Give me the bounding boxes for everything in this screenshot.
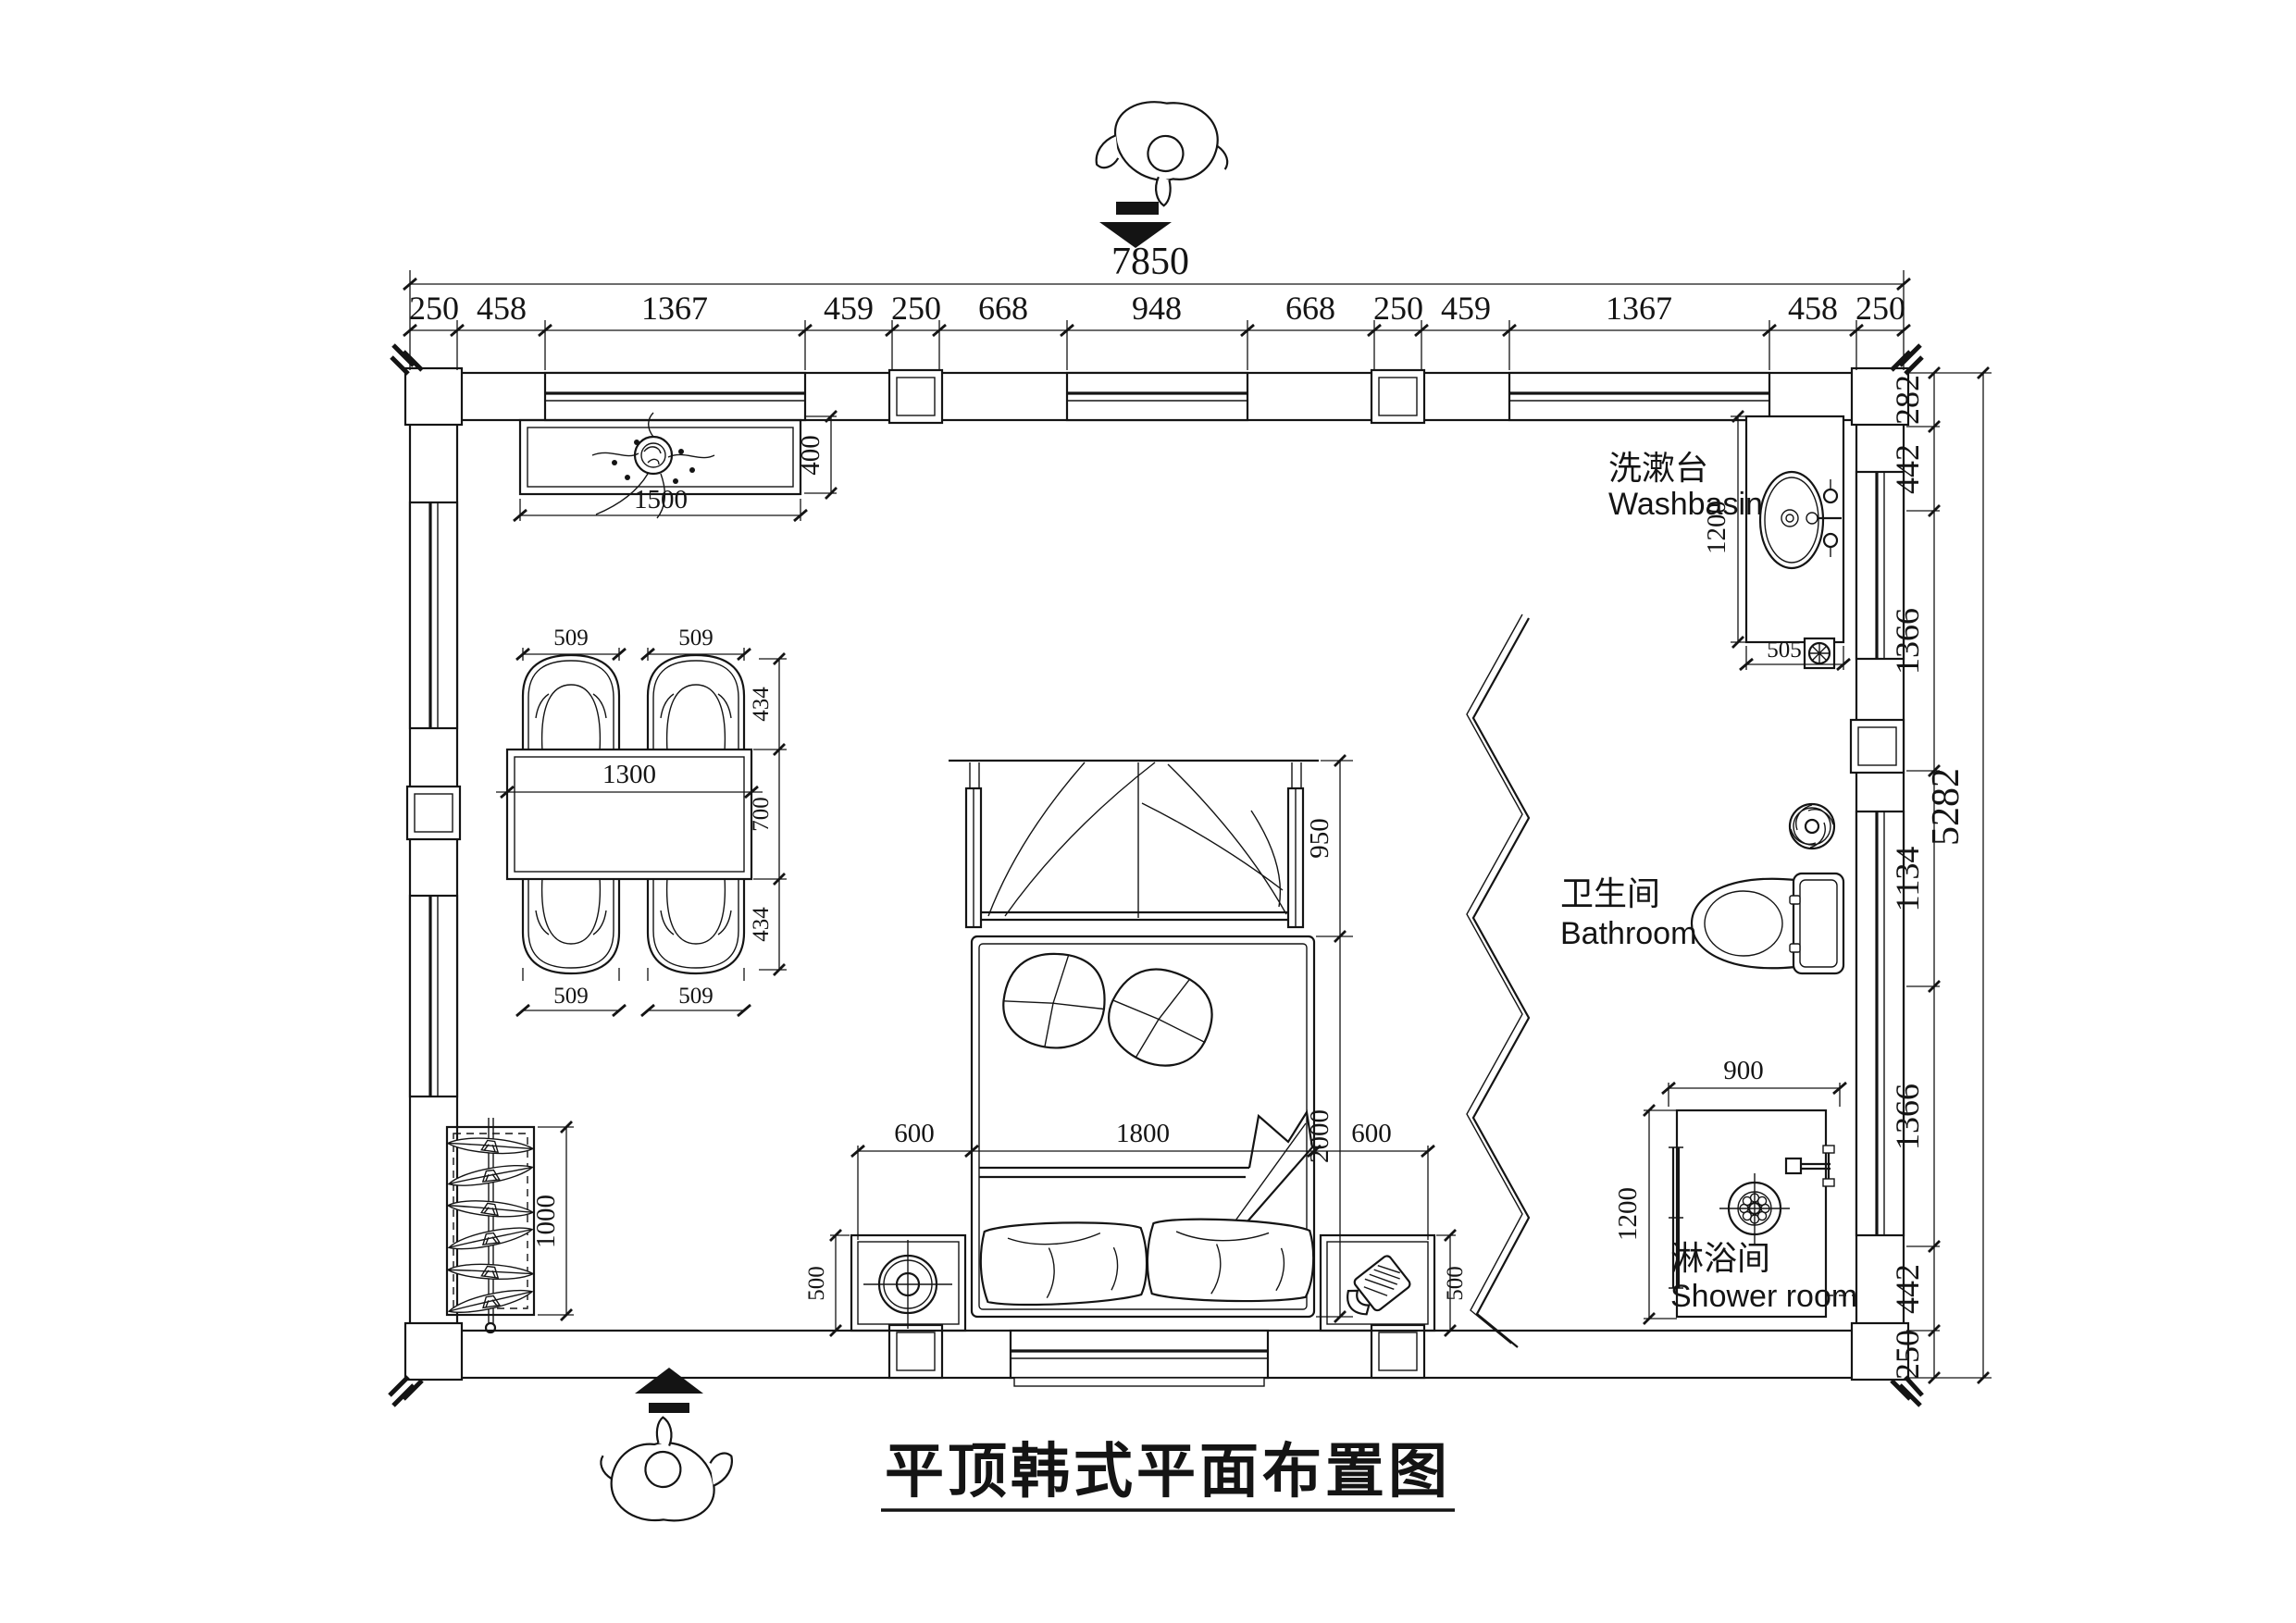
bed-gap-dim: 600 xyxy=(894,1119,935,1148)
bathroom-area: 卫生间 Bathroom xyxy=(1560,804,1843,973)
window-left-lower xyxy=(410,896,457,1096)
toilet-icon xyxy=(1692,873,1843,973)
column-right xyxy=(1851,720,1904,773)
entry-arrow-up-icon xyxy=(635,1368,703,1413)
dim-chain-top: 250 458 1367 459 250 668 948 668 250 459… xyxy=(403,241,1910,370)
dim-label: 250 xyxy=(1373,290,1423,327)
canopy-depth-dim: 950 xyxy=(1305,818,1334,859)
dim-label: 250 xyxy=(1855,290,1905,327)
cabinet-depth-dim: 400 xyxy=(796,435,825,476)
nightstand-left xyxy=(851,1235,965,1331)
dim-label: 459 xyxy=(1441,290,1491,327)
person-bottom-icon xyxy=(595,1411,736,1528)
dim-label: 282 xyxy=(1889,375,1926,425)
column-top-2 xyxy=(1371,370,1424,423)
dim-label: 459 xyxy=(824,290,874,327)
bathroom-label-en: Bathroom xyxy=(1560,916,1696,951)
throw-pillow xyxy=(1099,960,1221,1076)
shower-width-dim: 900 xyxy=(1723,1056,1764,1085)
toilet-tank xyxy=(1793,873,1843,973)
bed-canopy xyxy=(949,761,1319,927)
dim-total-top: 7850 xyxy=(1111,241,1189,283)
dim-label: 1366 xyxy=(1889,1084,1926,1150)
chair-depth-dim: 434 xyxy=(749,907,774,942)
dim-label: 1366 xyxy=(1889,608,1926,675)
hanger-icon xyxy=(447,1259,533,1284)
throw-pillow xyxy=(999,948,1110,1053)
person-top-icon xyxy=(1091,93,1235,213)
bed-width-dim: 1800 xyxy=(1116,1119,1170,1148)
dim-label: 1367 xyxy=(641,290,708,327)
dim-label: 250 xyxy=(1889,1330,1926,1380)
table-depth-dim: 700 xyxy=(749,797,774,832)
bathroom-label-zh: 卫生间 xyxy=(1560,874,1660,912)
counter-width-dim: 505 xyxy=(1767,638,1802,663)
floor-plan-page: 250 458 1367 459 250 668 948 668 250 459… xyxy=(0,0,2296,1623)
table-length-dim: 1300 xyxy=(602,760,656,789)
hanger-icon xyxy=(447,1225,533,1252)
chair xyxy=(523,873,619,973)
zigzag-partition xyxy=(1467,614,1529,1347)
floor-plan-drawing: 250 458 1367 459 250 668 948 668 250 459… xyxy=(0,0,2296,1623)
hanger-icon xyxy=(447,1195,533,1222)
bed-pillow xyxy=(979,1220,1148,1307)
dim-label: 458 xyxy=(1788,290,1838,327)
telephone-icon xyxy=(1339,1254,1412,1322)
dim-label: 458 xyxy=(477,290,527,327)
bed-length-dim: 2000 xyxy=(1305,1109,1334,1163)
hanger-icon xyxy=(447,1133,533,1159)
chair xyxy=(523,655,619,755)
bed-group: 600 1800 600 950 2000 500 500 xyxy=(804,755,1468,1336)
dim-label: 250 xyxy=(891,290,941,327)
drawing-title: 平顶韩式平面布置图 xyxy=(885,1438,1451,1505)
dim-label: 442 xyxy=(1889,1264,1926,1314)
nightstand-dim: 500 xyxy=(1443,1266,1468,1301)
dining-set: 509 509 509 509 434 700 434 1300 xyxy=(496,626,787,1016)
window-top-right xyxy=(1509,373,1769,420)
floor-drain-icon xyxy=(1805,638,1834,668)
washbasin-label-zh: 洗漱台 xyxy=(1608,449,1708,487)
door-top-center xyxy=(1067,373,1247,420)
entry-bottom xyxy=(595,1368,736,1528)
shower-label-zh: 淋浴间 xyxy=(1670,1239,1770,1277)
chair-width-dim: 509 xyxy=(678,984,714,1009)
dim-label: 442 xyxy=(1889,444,1926,494)
hanger-icon xyxy=(447,1287,533,1315)
nightstand-dim: 500 xyxy=(804,1266,829,1301)
dim-label: 948 xyxy=(1132,290,1182,327)
window-left-upper xyxy=(410,502,457,728)
wardrobe-length-dim: 1000 xyxy=(531,1195,561,1248)
dim-label: 1134 xyxy=(1889,847,1926,912)
wardrobe: 1000 xyxy=(447,1118,574,1332)
tv-cabinet: 1500 400 xyxy=(514,411,837,521)
shower-area: 900 1200 淋浴间 Shower room xyxy=(1613,1056,1857,1324)
lamp-icon xyxy=(863,1240,952,1329)
bed-pillow xyxy=(1146,1217,1314,1304)
bed-gap-dim: 600 xyxy=(1351,1119,1392,1148)
dim-label: 1367 xyxy=(1606,290,1672,327)
chair xyxy=(648,873,744,973)
chair-depth-dim: 434 xyxy=(749,687,774,722)
dim-label: 250 xyxy=(409,290,459,327)
cabinet-width-dim: 1500 xyxy=(634,485,688,514)
column-left xyxy=(407,787,460,839)
chair-width-dim: 509 xyxy=(553,626,589,650)
chair-width-dim: 509 xyxy=(553,984,589,1009)
shower-label-en: Shower room xyxy=(1670,1279,1857,1314)
dim-total-right: 5282 xyxy=(1925,768,1967,846)
dim-label: 668 xyxy=(1285,290,1335,327)
washbasin-area: 1200 505 洗漱台 Washbasin xyxy=(1608,411,1850,670)
entry-top xyxy=(1091,93,1235,248)
window-top-left xyxy=(545,373,805,420)
hanger-icon xyxy=(447,1163,533,1188)
window-bottom-center xyxy=(1011,1331,1268,1386)
column-top-1 xyxy=(889,370,942,423)
title-block: 平顶韩式平面布置图 xyxy=(881,1438,1455,1510)
chair xyxy=(648,655,744,755)
washbasin-label-en: Washbasin xyxy=(1608,487,1763,522)
shower-depth-dim: 1200 xyxy=(1613,1187,1643,1241)
column-bottom-2 xyxy=(1371,1325,1424,1378)
chair-width-dim: 509 xyxy=(678,626,714,650)
column-bottom-1 xyxy=(889,1325,942,1378)
dim-label: 668 xyxy=(978,290,1028,327)
exhaust-fan-icon xyxy=(1790,804,1834,849)
